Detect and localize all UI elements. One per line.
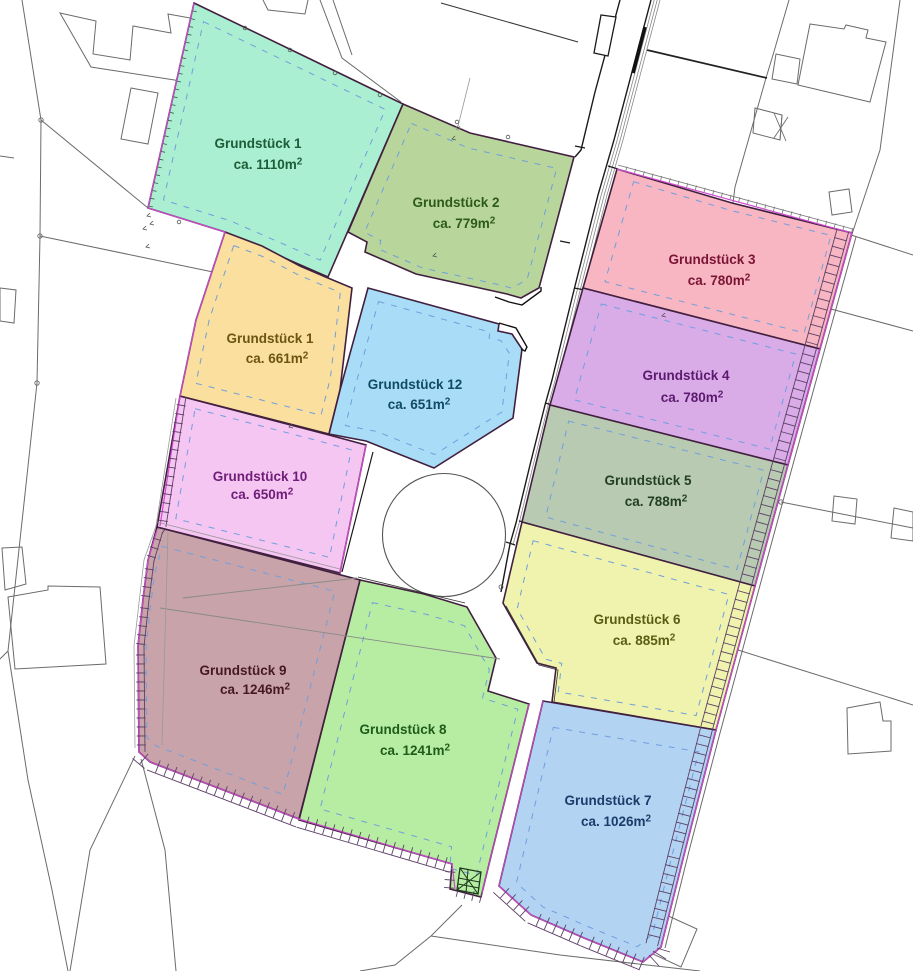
svg-text:ca. 661m2: ca. 661m2 <box>246 351 309 367</box>
svg-text:ca. 885m2: ca. 885m2 <box>613 633 676 649</box>
svg-text:Grundstück 9: Grundstück 9 <box>199 663 286 678</box>
svg-text:Grundstück 5: Grundstück 5 <box>604 473 692 488</box>
svg-text:ca. 780m2: ca. 780m2 <box>688 273 751 289</box>
svg-text:Grundstück 1: Grundstück 1 <box>226 331 314 346</box>
svg-text:ca. 651m2: ca. 651m2 <box>388 397 451 413</box>
svg-text:Grundstück 4: Grundstück 4 <box>642 368 730 383</box>
svg-text:ca. 650m2: ca. 650m2 <box>231 487 294 503</box>
svg-text:Grundstück 1: Grundstück 1 <box>214 136 302 151</box>
svg-text:Grundstück 6: Grundstück 6 <box>593 612 681 627</box>
svg-text:Grundstück 3: Grundstück 3 <box>668 252 756 267</box>
svg-text:Grundstück 7: Grundstück 7 <box>564 793 651 808</box>
svg-text:ca. 1110m2: ca. 1110m2 <box>234 157 303 173</box>
svg-text:ca. 1241m2: ca. 1241m2 <box>380 743 451 759</box>
svg-text:Grundstück 10: Grundstück 10 <box>213 469 308 484</box>
svg-text:Grundstück 8: Grundstück 8 <box>359 722 447 737</box>
svg-text:ca. 1026m2: ca. 1026m2 <box>581 814 652 830</box>
svg-text:ca. 780m2: ca. 780m2 <box>661 390 724 406</box>
svg-text:Grundstück 12: Grundstück 12 <box>368 377 463 392</box>
svg-text:ca. 779m2: ca. 779m2 <box>433 216 496 232</box>
svg-text:ca. 1246m2: ca. 1246m2 <box>220 682 291 698</box>
svg-text:Grundstück 2: Grundstück 2 <box>412 195 499 210</box>
svg-text:ca. 788m2: ca. 788m2 <box>625 494 688 510</box>
